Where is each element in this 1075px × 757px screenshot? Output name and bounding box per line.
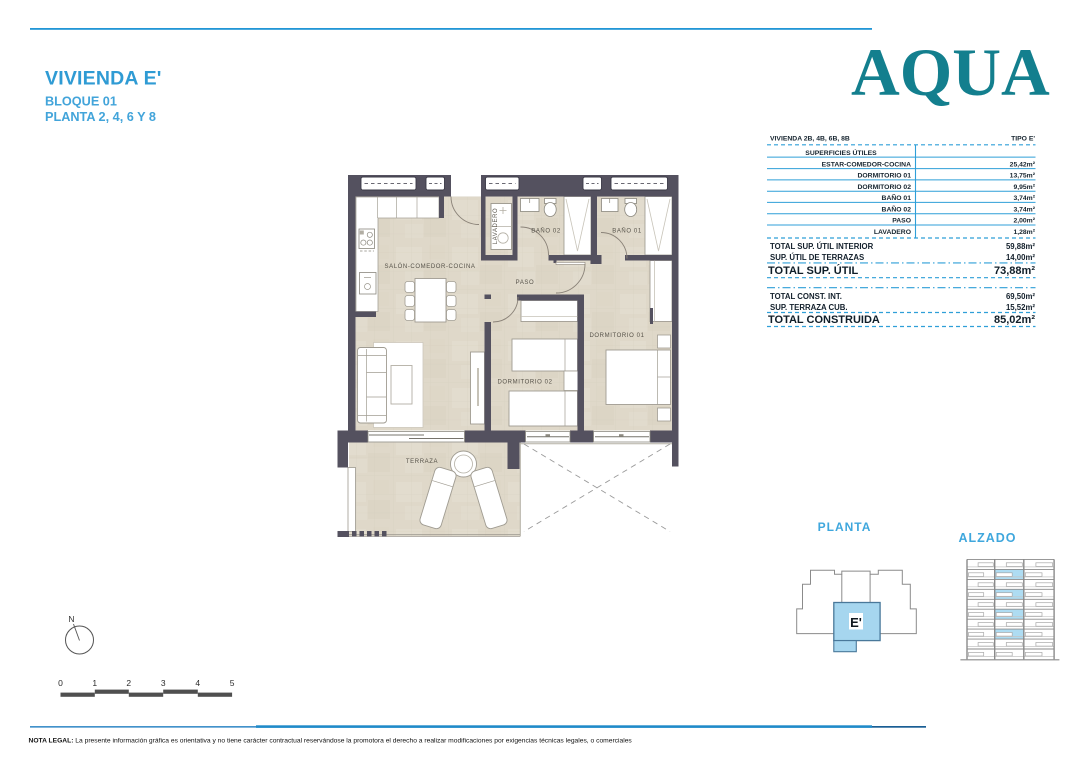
svg-text:1: 1 bbox=[92, 678, 97, 688]
svg-text:TOTAL SUP. ÚTIL: TOTAL SUP. ÚTIL bbox=[768, 264, 859, 277]
svg-text:VIVIENDA 2B, 4B, 6B, 8B: VIVIENDA 2B, 4B, 6B, 8B bbox=[770, 136, 850, 143]
svg-text:BAÑO 02: BAÑO 02 bbox=[531, 228, 561, 235]
svg-text:TOTAL CONSTRUIDA: TOTAL CONSTRUIDA bbox=[768, 314, 880, 326]
svg-text:73,88m²: 73,88m² bbox=[994, 265, 1035, 277]
svg-text:9,95m²: 9,95m² bbox=[1013, 184, 1035, 191]
svg-text:0: 0 bbox=[58, 678, 63, 688]
svg-text:PLANTA: PLANTA bbox=[818, 520, 872, 534]
svg-text:SUP. TERRAZA CUB.: SUP. TERRAZA CUB. bbox=[770, 303, 848, 312]
svg-text:15,52m²: 15,52m² bbox=[1006, 303, 1035, 312]
svg-text:BAÑO 01: BAÑO 01 bbox=[882, 193, 912, 202]
svg-text:PLANTA 2, 4, 6 Y 8: PLANTA 2, 4, 6 Y 8 bbox=[45, 110, 156, 124]
svg-text:BLOQUE 01: BLOQUE 01 bbox=[45, 95, 117, 109]
svg-text:SUP. ÚTIL DE TERRAZAS: SUP. ÚTIL DE TERRAZAS bbox=[770, 253, 864, 262]
svg-text:LAVADERO: LAVADERO bbox=[874, 229, 911, 236]
svg-text:DORMITORIO 02: DORMITORIO 02 bbox=[497, 380, 552, 386]
svg-text:ESTAR-COMEDOR-COCINA: ESTAR-COMEDOR-COCINA bbox=[822, 161, 911, 168]
svg-text:PASO: PASO bbox=[516, 280, 535, 286]
svg-text:14,00m²: 14,00m² bbox=[1006, 253, 1035, 262]
svg-text:25,42m²: 25,42m² bbox=[1010, 161, 1036, 168]
svg-text:SALÓN-COMEDOR-COCINA: SALÓN-COMEDOR-COCINA bbox=[384, 263, 475, 270]
svg-text:TERRAZA: TERRAZA bbox=[406, 459, 438, 465]
svg-text:N: N bbox=[68, 614, 74, 624]
svg-text:PASO: PASO bbox=[892, 218, 911, 225]
svg-text:4: 4 bbox=[195, 678, 200, 688]
svg-text:ALZADO: ALZADO bbox=[958, 531, 1016, 545]
svg-text:LAVADERO: LAVADERO bbox=[493, 208, 499, 245]
svg-text:AQUA: AQUA bbox=[851, 35, 1050, 110]
svg-text:TOTAL SUP. ÚTIL INTERIOR: TOTAL SUP. ÚTIL INTERIOR bbox=[770, 242, 874, 251]
svg-text:3: 3 bbox=[161, 678, 166, 688]
svg-text:BAÑO 01: BAÑO 01 bbox=[612, 228, 642, 235]
svg-text:SUPERFICIES ÚTILES: SUPERFICIES ÚTILES bbox=[805, 148, 877, 157]
svg-text:NOTA LEGAL: La presente inform: NOTA LEGAL: La presente información gráf… bbox=[29, 738, 633, 745]
svg-text:BAÑO 02: BAÑO 02 bbox=[882, 204, 912, 213]
svg-text:5: 5 bbox=[230, 678, 235, 688]
svg-text:69,50m²: 69,50m² bbox=[1006, 292, 1035, 301]
svg-text:85,02m²: 85,02m² bbox=[994, 314, 1035, 326]
svg-text:DORMITORIO 02: DORMITORIO 02 bbox=[857, 184, 911, 191]
svg-text:TOTAL CONST. INT.: TOTAL CONST. INT. bbox=[770, 292, 842, 301]
svg-text:2: 2 bbox=[126, 678, 131, 688]
svg-text:VIVIENDA E': VIVIENDA E' bbox=[45, 68, 162, 90]
svg-text:13,75m²: 13,75m² bbox=[1010, 173, 1036, 180]
svg-text:TIPO E': TIPO E' bbox=[1011, 136, 1035, 143]
svg-text:DORMITORIO 01: DORMITORIO 01 bbox=[857, 173, 911, 180]
svg-text:3,74m²: 3,74m² bbox=[1013, 206, 1035, 213]
svg-text:DORMITORIO 01: DORMITORIO 01 bbox=[589, 333, 644, 339]
svg-text:2,00m²: 2,00m² bbox=[1013, 218, 1035, 225]
svg-text:59,88m²: 59,88m² bbox=[1006, 242, 1035, 251]
svg-text:1,28m²: 1,28m² bbox=[1013, 229, 1035, 236]
svg-text:E': E' bbox=[850, 615, 862, 630]
svg-text:3,74m²: 3,74m² bbox=[1013, 195, 1035, 202]
